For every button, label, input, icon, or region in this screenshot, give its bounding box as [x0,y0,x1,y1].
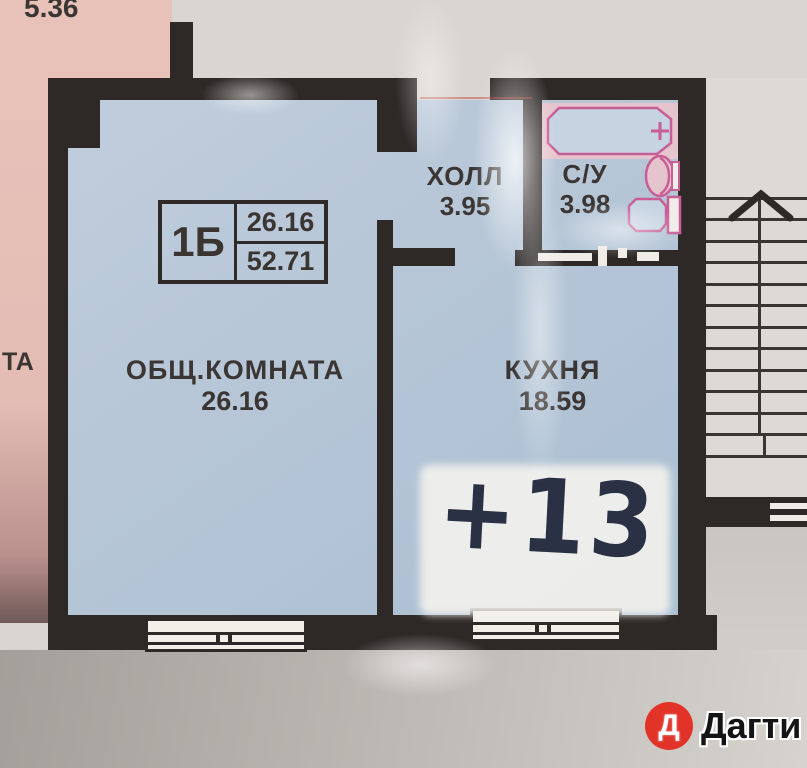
wall-hall-stub [393,248,455,266]
sink-icon [644,154,680,198]
handwritten-annotation: +13 [435,452,662,582]
wall-living-kitchen-divider [377,220,393,615]
stairs-bottom-bracket [763,433,766,458]
stairs-center-rail [758,200,761,433]
wall-right [678,78,706,650]
floor-plan-photo: 5.36 ТА [0,0,807,768]
hall-label: ХОЛЛ 3.95 [405,162,525,222]
toilet-icon [626,194,682,236]
living-room-label: ОБЩ.КОМНАТА 26.16 [105,355,365,417]
wall-party-stub [170,22,193,78]
unit-total-area: 52.71 [237,244,324,281]
stairs-up-arrow-icon [726,188,796,222]
brand-name: Дагти [701,705,801,747]
wall-pilaster-top-left [68,100,100,148]
landing-window-mark [770,515,807,521]
bathroom-label: С/У 3.98 [540,160,630,220]
door-leaf-mark [538,253,592,261]
unit-type-label: 1Б [162,204,237,280]
door-leaf-mark [618,248,627,258]
kitchen-label: КУХНЯ 18.59 [430,355,675,417]
unit-info-table: 1Б 26.16 52.71 [158,200,328,284]
wall-top-left-segment [48,78,417,100]
landing-window-mark [770,503,807,509]
neighbor-partial-text: ТА [2,348,34,377]
door-jamb-mark [598,246,607,266]
corridor-area [172,0,807,80]
unit-living-area: 26.16 [237,204,324,244]
brand-logo-icon: Д [645,702,693,750]
wall-stairwell-landing [678,497,807,527]
neighbor-area-value: 5.36 [24,0,79,24]
entrance-pen-mark [420,97,532,99]
brand-watermark: Д Дагти [645,698,805,754]
wall-pilaster-entrance-left [377,100,417,152]
door-leaf-mark [637,252,659,261]
living-room-window [145,618,307,652]
wall-left [48,78,68,650]
bathtub-icon [545,105,677,157]
